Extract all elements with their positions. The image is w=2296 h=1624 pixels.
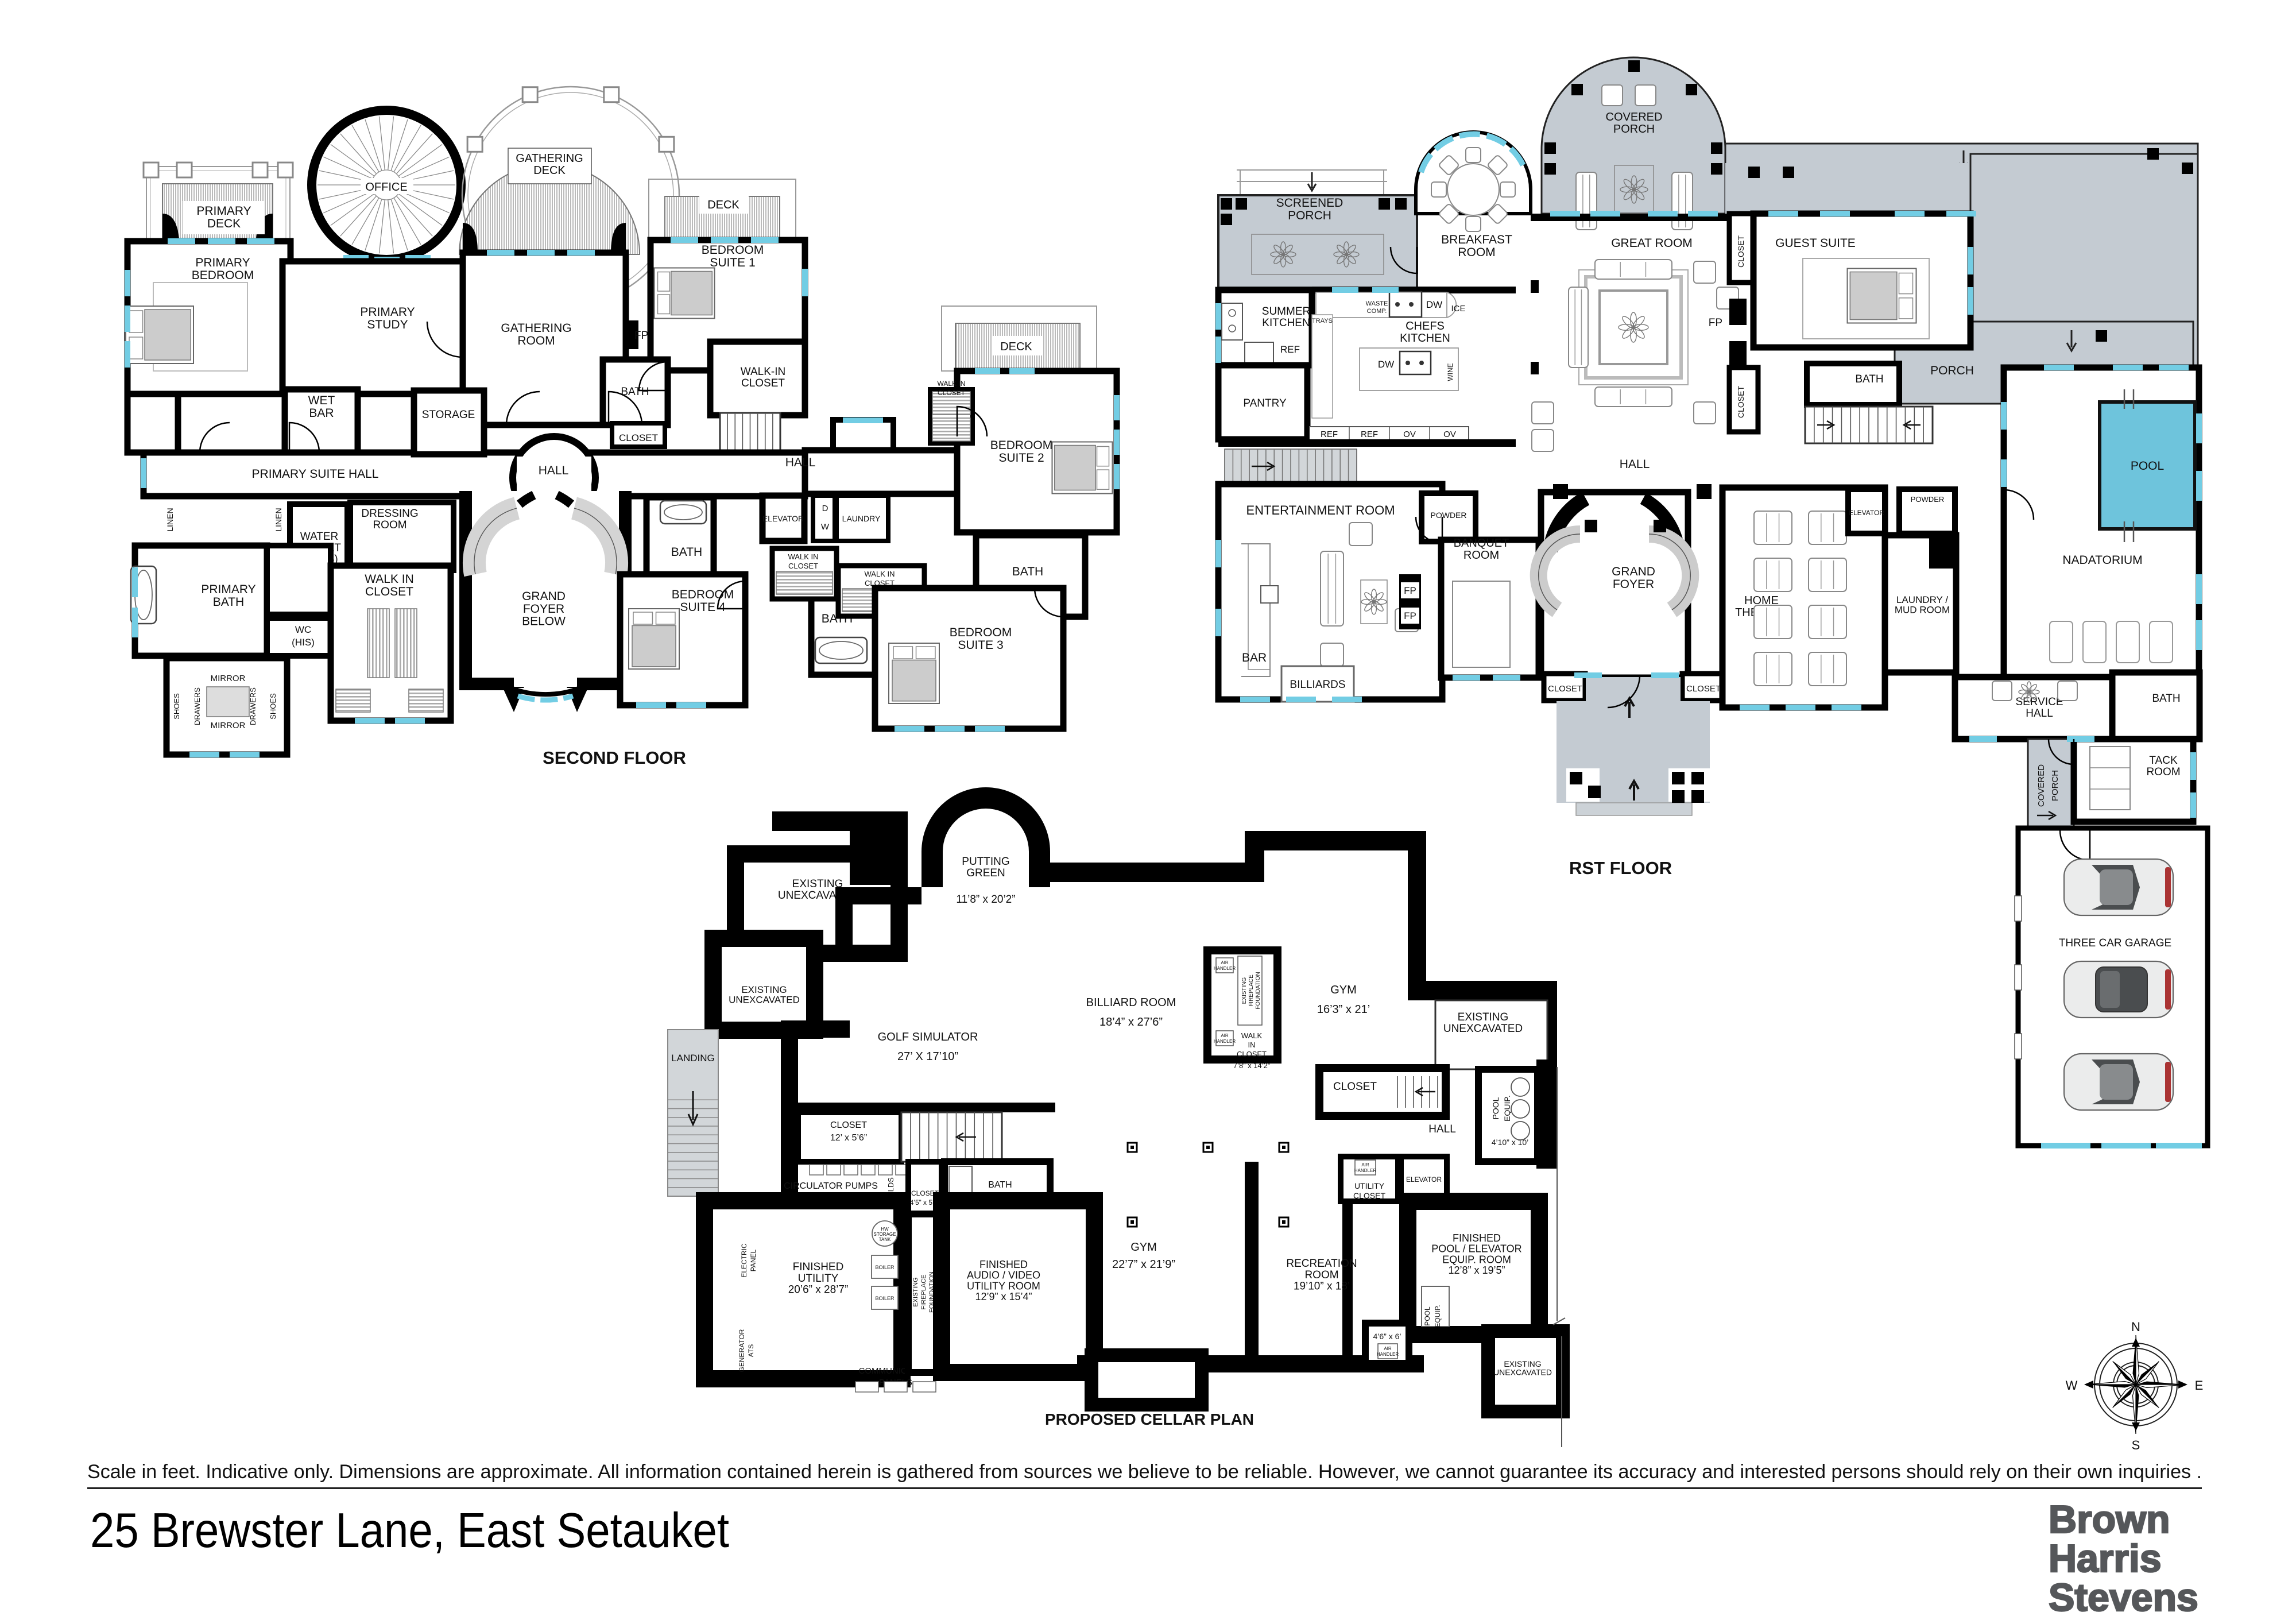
svg-text:HANDLER: HANDLER — [1354, 1168, 1376, 1173]
svg-text:27’ X 17’10”: 27’ X 17’10” — [897, 1050, 958, 1063]
svg-text:SHOES: SHOES — [172, 693, 181, 720]
svg-text:DRESSING: DRESSING — [361, 508, 418, 520]
svg-text:REF: REF — [1321, 430, 1338, 439]
svg-text:STORAGE: STORAGE — [874, 1232, 896, 1237]
svg-text:UTILITY: UTILITY — [798, 1273, 839, 1285]
svg-text:GYM: GYM — [1330, 984, 1357, 996]
svg-text:WALK IN: WALK IN — [938, 380, 966, 388]
svg-text:PRIMARY: PRIMARY — [201, 583, 255, 596]
svg-text:BATH: BATH — [988, 1180, 1012, 1190]
svg-text:CLOSET: CLOSET — [1736, 386, 1745, 418]
svg-text:7’8” x 14’2”: 7’8” x 14’2” — [1233, 1061, 1270, 1070]
svg-text:19’10” x 18’: 19’10” x 18’ — [1294, 1281, 1350, 1293]
svg-text:ROOM: ROOM — [1304, 1269, 1338, 1281]
svg-text:HALL: HALL — [1620, 458, 1650, 471]
svg-text:HALL: HALL — [1428, 1123, 1456, 1135]
svg-text:FP: FP — [1709, 317, 1722, 329]
svg-text:BILLIARD ROOM: BILLIARD ROOM — [1086, 996, 1176, 1009]
svg-text:SECOND FLOOR: SECOND FLOOR — [543, 748, 686, 768]
svg-text:GUEST SUITE: GUEST SUITE — [1775, 237, 1856, 250]
svg-text:ROOM: ROOM — [373, 519, 406, 531]
svg-text:PANEL: PANEL — [749, 1249, 757, 1271]
svg-text:REF: REF — [1280, 344, 1300, 355]
svg-text:SCREENED: SCREENED — [1276, 196, 1343, 210]
svg-text:HANDLER: HANDLER — [1214, 966, 1236, 971]
svg-text:22’7” x 21’9”: 22’7” x 21’9” — [1112, 1258, 1175, 1271]
svg-text:PORCH: PORCH — [1613, 123, 1655, 136]
svg-text:BILLIARDS: BILLIARDS — [1290, 679, 1345, 691]
svg-text:TACK: TACK — [2149, 755, 2178, 767]
svg-text:CLOSET: CLOSET — [1686, 684, 1721, 694]
svg-text:PORCH: PORCH — [1288, 209, 1331, 222]
svg-text:GYM: GYM — [1130, 1241, 1157, 1254]
svg-text:WASTE: WASTE — [1366, 300, 1388, 307]
svg-text:ROOM: ROOM — [2146, 766, 2180, 778]
svg-text:GRAND: GRAND — [522, 590, 566, 603]
svg-text:CLOSET: CLOSET — [1237, 1050, 1267, 1058]
svg-text:ROOM: ROOM — [1463, 549, 1499, 562]
svg-text:FINISHED: FINISHED — [979, 1259, 1028, 1270]
svg-text:HANDLER: HANDLER — [1377, 1352, 1399, 1357]
svg-text:FP: FP — [634, 330, 648, 342]
svg-text:FP: FP — [1404, 610, 1416, 621]
svg-text:OFFICE: OFFICE — [365, 181, 407, 194]
svg-text:BREAKFAST: BREAKFAST — [1441, 233, 1512, 246]
svg-text:KITCHEN: KITCHEN — [1400, 332, 1450, 345]
svg-text:CLOSET: CLOSET — [938, 389, 966, 397]
svg-text:12’9” x 15’4”: 12’9” x 15’4” — [975, 1291, 1032, 1302]
svg-text:CLOSET: CLOSET — [741, 377, 785, 389]
svg-text:EQUIP.: EQUIP. — [1434, 1305, 1442, 1327]
svg-text:POOL: POOL — [1491, 1097, 1500, 1119]
svg-text:WET: WET — [308, 394, 335, 407]
svg-text:BEDROOM: BEDROOM — [192, 269, 254, 282]
svg-text:FIREPLACE: FIREPLACE — [1248, 975, 1255, 1007]
svg-text:EXISTING: EXISTING — [912, 1277, 919, 1306]
svg-text:FOYER: FOYER — [523, 602, 564, 616]
svg-text:MUD ROOM: MUD ROOM — [1895, 605, 1950, 616]
svg-text:GENERATOR: GENERATOR — [738, 1329, 746, 1372]
svg-text:4’6” x 6’: 4’6” x 6’ — [1373, 1332, 1401, 1341]
svg-text:GATHERING: GATHERING — [516, 152, 583, 165]
svg-text:RECREATION: RECREATION — [1286, 1258, 1357, 1270]
svg-text:RST FLOOR: RST FLOOR — [1569, 858, 1672, 878]
svg-text:E: E — [2195, 1378, 2204, 1393]
svg-text:S: S — [2132, 1438, 2140, 1452]
svg-text:UNEXCAVATED: UNEXCAVATED — [1443, 1023, 1523, 1035]
svg-text:WALK-IN: WALK-IN — [741, 366, 785, 378]
svg-text:EXISTING: EXISTING — [741, 984, 787, 995]
svg-text:COMP.: COMP. — [1367, 308, 1387, 315]
svg-text:EXISTING: EXISTING — [1458, 1011, 1509, 1023]
svg-text:GREEN: GREEN — [966, 867, 1005, 879]
svg-text:THREE CAR GARAGE: THREE CAR GARAGE — [2059, 937, 2171, 949]
svg-text:Scale in feet. Indicative only: Scale in feet. Indicative only. Dimensio… — [87, 1461, 2202, 1483]
svg-text:BATH: BATH — [671, 546, 702, 559]
svg-text:TANK: TANK — [879, 1237, 891, 1242]
svg-text:HW: HW — [881, 1227, 889, 1232]
svg-text:20’6” x 28’7”: 20’6” x 28’7” — [788, 1284, 849, 1296]
svg-text:ELEVATOR: ELEVATOR — [1849, 509, 1884, 517]
svg-text:BAR: BAR — [309, 407, 334, 420]
svg-text:POWDER: POWDER — [1431, 511, 1467, 520]
svg-text:DW: DW — [1378, 359, 1394, 370]
svg-text:PORCH: PORCH — [2050, 770, 2060, 801]
svg-text:SHOES: SHOES — [269, 693, 277, 720]
svg-text:COVERED: COVERED — [2036, 764, 2046, 807]
svg-text:PROPOSED CELLAR PLAN: PROPOSED CELLAR PLAN — [1045, 1410, 1254, 1428]
svg-text:EQUIP.: EQUIP. — [1503, 1095, 1512, 1122]
svg-text:AIR: AIR — [1221, 960, 1229, 965]
svg-text:BANQUET: BANQUET — [1454, 537, 1509, 550]
svg-text:Harris: Harris — [2049, 1537, 2162, 1580]
svg-text:DECK: DECK — [1000, 341, 1032, 353]
svg-text:FINISHED: FINISHED — [1453, 1232, 1501, 1244]
svg-text:GRAND: GRAND — [1612, 565, 1655, 578]
svg-text:DRAWERS: DRAWERS — [249, 687, 257, 725]
svg-text:UNEXCAVATED: UNEXCAVATED — [1493, 1368, 1552, 1377]
svg-text:CLOSET: CLOSET — [365, 585, 413, 598]
svg-text:DECK: DECK — [533, 164, 566, 177]
svg-text:BATH: BATH — [2152, 693, 2180, 705]
svg-text:SUMMER: SUMMER — [1262, 306, 1310, 318]
svg-text:11’8” x 20’2”: 11’8” x 20’2” — [956, 894, 1015, 906]
svg-text:POOL: POOL — [1423, 1306, 1431, 1326]
svg-text:DW: DW — [1426, 299, 1442, 310]
svg-text:MIRROR: MIRROR — [211, 721, 246, 730]
svg-text:LAUNDRY: LAUNDRY — [842, 514, 881, 523]
svg-text:CLOSET: CLOSET — [1353, 1191, 1385, 1200]
svg-text:EXISTING: EXISTING — [1241, 977, 1248, 1004]
svg-text:BOILER: BOILER — [875, 1265, 895, 1270]
svg-text:ENTERTAINMENT ROOM: ENTERTAINMENT ROOM — [1246, 503, 1395, 517]
svg-text:18’4” x 27’6”: 18’4” x 27’6” — [1099, 1016, 1163, 1028]
svg-text:WALK IN: WALK IN — [365, 573, 414, 586]
svg-text:DECK: DECK — [707, 199, 739, 211]
svg-text:GREAT ROOM: GREAT ROOM — [1611, 237, 1693, 250]
svg-text:WC: WC — [295, 624, 311, 635]
svg-text:WALK IN: WALK IN — [865, 570, 895, 578]
svg-text:LINEN: LINEN — [274, 508, 283, 531]
svg-text:DECK: DECK — [207, 217, 241, 230]
svg-text:SUITE 3: SUITE 3 — [958, 639, 1003, 652]
svg-text:BATH: BATH — [1012, 565, 1043, 578]
svg-text:BOILER: BOILER — [875, 1296, 895, 1301]
svg-text:PRIMARY: PRIMARY — [360, 306, 415, 319]
svg-text:BATH: BATH — [213, 596, 244, 609]
svg-text:ROOM: ROOM — [1458, 246, 1495, 259]
svg-text:ELEVATOR: ELEVATOR — [762, 514, 804, 523]
svg-text:25 Brewster Lane, East Setauke: 25 Brewster Lane, East Setauket — [90, 1503, 729, 1558]
svg-text:FP: FP — [1404, 585, 1416, 596]
svg-text:16’3” x 21’: 16’3” x 21’ — [1317, 1003, 1370, 1016]
svg-text:BATH: BATH — [1855, 373, 1883, 385]
svg-text:FOUNDATION: FOUNDATION — [1255, 972, 1261, 1009]
svg-text:WATER: WATER — [300, 531, 339, 543]
svg-text:UTILITY: UTILITY — [1354, 1181, 1385, 1190]
svg-text:ROOM: ROOM — [517, 334, 555, 347]
svg-text:REF: REF — [1361, 430, 1378, 439]
svg-text:MIRROR: MIRROR — [211, 674, 246, 683]
svg-text:Stevens: Stevens — [2049, 1576, 2198, 1619]
svg-text:CLOSET: CLOSET — [830, 1120, 867, 1130]
svg-text:AIR: AIR — [1221, 1033, 1229, 1038]
svg-text:12’ x 5’6”: 12’ x 5’6” — [830, 1133, 867, 1143]
svg-text:PRIMARY SUITE HALL: PRIMARY SUITE HALL — [252, 467, 379, 481]
svg-text:PUTTING: PUTTING — [962, 856, 1009, 868]
svg-text:W: W — [821, 522, 830, 532]
svg-text:PORCH: PORCH — [1930, 364, 1974, 377]
svg-text:D: D — [822, 504, 828, 513]
svg-text:SERVICE: SERVICE — [2015, 696, 2063, 708]
svg-text:HANDLER: HANDLER — [1214, 1039, 1236, 1044]
svg-text:WALK IN: WALK IN — [788, 552, 819, 561]
svg-text:PRIMARY: PRIMARY — [196, 204, 251, 218]
svg-text:BEDROOM: BEDROOM — [990, 439, 1053, 452]
svg-text:12’8” x 19’5”: 12’8” x 19’5” — [1448, 1265, 1505, 1276]
svg-text:FOYER: FOYER — [1613, 578, 1654, 591]
svg-text:CLOSET: CLOSET — [619, 432, 658, 443]
svg-text:HALL: HALL — [785, 456, 816, 469]
svg-text:N: N — [2131, 1320, 2140, 1334]
svg-text:PRIMARY: PRIMARY — [195, 256, 250, 269]
svg-text:COVERED: COVERED — [1606, 111, 1663, 123]
svg-text:Brown: Brown — [2049, 1498, 2170, 1541]
svg-text:ATS: ATS — [747, 1344, 755, 1357]
svg-text:FIREPLACE: FIREPLACE — [920, 1274, 927, 1309]
svg-text:AUDIO / VIDEO: AUDIO / VIDEO — [967, 1270, 1040, 1281]
svg-text:IN: IN — [1248, 1041, 1256, 1049]
svg-text:UTILITY ROOM: UTILITY ROOM — [967, 1280, 1040, 1292]
svg-text:HALL: HALL — [2026, 707, 2053, 720]
svg-text:SUITE 2: SUITE 2 — [998, 451, 1044, 465]
svg-text:CLOSET: CLOSET — [1333, 1081, 1377, 1093]
svg-text:LANDING: LANDING — [671, 1053, 715, 1064]
svg-text:CLOSET: CLOSET — [1736, 235, 1745, 268]
svg-text:W: W — [2066, 1378, 2078, 1393]
svg-text:CIRCULATOR PUMPS: CIRCULATOR PUMPS — [784, 1181, 878, 1191]
svg-text:TRAYS: TRAYS — [1312, 318, 1333, 324]
svg-text:POOL / ELEVATOR: POOL / ELEVATOR — [1431, 1243, 1521, 1255]
svg-text:(HIS): (HIS) — [292, 637, 315, 648]
svg-text:GATHERING: GATHERING — [501, 322, 571, 335]
svg-text:BELOW: BELOW — [522, 615, 566, 628]
svg-text:CLOSET: CLOSET — [1548, 684, 1582, 694]
svg-text:WALK: WALK — [1241, 1031, 1263, 1040]
svg-text:HALL: HALL — [539, 464, 569, 477]
svg-text:BEDROOM: BEDROOM — [950, 626, 1012, 639]
svg-text:PANTRY: PANTRY — [1243, 397, 1287, 409]
svg-text:AIR: AIR — [1361, 1162, 1369, 1167]
svg-text:ELEVATOR: ELEVATOR — [1406, 1176, 1442, 1184]
svg-text:OV: OV — [1443, 430, 1456, 439]
svg-text:POWDER: POWDER — [1911, 495, 1945, 504]
svg-text:LAUNDRY /: LAUNDRY / — [1896, 594, 1948, 605]
svg-text:GOLF SIMULATOR: GOLF SIMULATOR — [878, 1031, 978, 1043]
svg-text:AIR: AIR — [1384, 1346, 1392, 1351]
svg-text:FINISHED: FINISHED — [793, 1261, 844, 1273]
svg-text:ICE: ICE — [1451, 304, 1465, 314]
svg-text:POOL: POOL — [2131, 459, 2164, 473]
svg-text:ELECTRIC: ELECTRIC — [740, 1243, 748, 1278]
svg-text:LINEN: LINEN — [165, 508, 175, 531]
svg-text:EQUIP. ROOM: EQUIP. ROOM — [1442, 1254, 1511, 1265]
svg-text:UNEXCAVATED: UNEXCAVATED — [729, 995, 800, 1006]
svg-text:BEDROOM: BEDROOM — [702, 243, 764, 257]
svg-text:BAR: BAR — [1242, 651, 1267, 664]
svg-text:DRAWERS: DRAWERS — [193, 687, 202, 725]
svg-text:NADATORIUM: NADATORIUM — [2062, 554, 2142, 567]
svg-text:CHEFS: CHEFS — [1406, 320, 1445, 332]
svg-text:STORAGE: STORAGE — [422, 409, 475, 421]
svg-text:CLOSET: CLOSET — [788, 562, 818, 570]
svg-text:STUDY: STUDY — [367, 318, 408, 331]
svg-text:OV: OV — [1403, 430, 1416, 439]
svg-text:SUITE 1: SUITE 1 — [710, 256, 755, 269]
svg-text:WINE: WINE — [1446, 363, 1454, 381]
svg-text:KITCHEN: KITCHEN — [1262, 317, 1310, 329]
